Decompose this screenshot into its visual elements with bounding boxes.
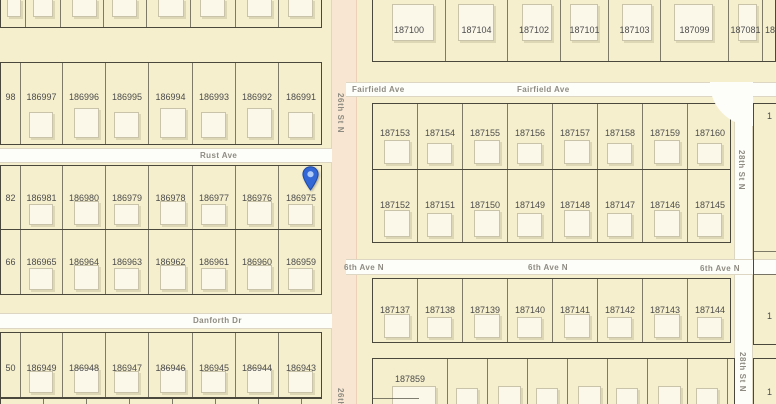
block-left-bottom-strip xyxy=(0,398,322,404)
parcel[interactable]: 186993 xyxy=(193,63,236,144)
parcel-number: 186946 xyxy=(149,363,192,373)
parcel-number: 186962 xyxy=(149,257,192,267)
parcel-number: 187141 xyxy=(553,305,597,315)
parcel-divider xyxy=(754,274,776,275)
parcel[interactable]: 18 xyxy=(763,0,776,61)
parcel-number: 186943 xyxy=(279,363,323,373)
parcel-number: 187099 xyxy=(661,25,728,35)
parcel-number: 187151 xyxy=(418,200,462,210)
parcel[interactable] xyxy=(608,359,648,404)
parcel-number: 18 xyxy=(763,25,776,35)
street-label-28th-st-n-bottom: 28th St N xyxy=(738,352,747,392)
parcel-number: 187154 xyxy=(418,128,462,138)
parcel[interactable] xyxy=(528,359,568,404)
parcel-number: 66 xyxy=(1,257,20,267)
parcel-number: 186995 xyxy=(106,92,148,102)
parcel-number: 186996 xyxy=(63,92,105,102)
parcel[interactable] xyxy=(1,0,26,27)
parcel[interactable]: 186961 xyxy=(193,230,236,294)
parcel[interactable]: 187139 xyxy=(463,279,508,342)
parcel[interactable]: 186992 xyxy=(236,63,279,144)
parcel[interactable]: 186977 xyxy=(193,166,236,229)
block-left-top xyxy=(0,0,322,28)
parcel[interactable]: 186943 xyxy=(279,333,323,397)
parcel-number: 186976 xyxy=(236,193,278,203)
parcel-number: 186977 xyxy=(193,193,235,203)
parcel[interactable]: 82 xyxy=(1,166,21,229)
parcel-number: 187139 xyxy=(463,305,507,315)
map-marker-pin[interactable] xyxy=(302,166,319,191)
street-label-28th-st-n: 28th St N xyxy=(737,150,746,190)
road-danforth-dr xyxy=(0,313,332,329)
parcel[interactable]: 186994 xyxy=(149,63,193,144)
road-26th-st-n xyxy=(331,0,357,404)
parcel-number: 187140 xyxy=(508,305,552,315)
parcel-number: 187148 xyxy=(553,200,597,210)
parcel[interactable] xyxy=(754,359,776,404)
parcel[interactable]: 186980 xyxy=(63,166,106,229)
parcel[interactable]: 186945 xyxy=(193,333,236,397)
parcel-number: 186979 xyxy=(106,193,148,203)
parcel-number: 186949 xyxy=(21,363,62,373)
block-left-row1: 98 186997 186996 186995 186994 186993 18… xyxy=(0,62,322,145)
parcel-number: 187158 xyxy=(598,128,642,138)
parcel[interactable]: 187149 xyxy=(508,170,553,242)
parcel-number: 187142 xyxy=(598,305,642,315)
parcel[interactable] xyxy=(568,359,608,404)
parcel[interactable]: 186996 xyxy=(63,63,106,144)
block-right-bottom: 187859 xyxy=(372,358,735,404)
parcel-number: 186964 xyxy=(63,257,105,267)
parcel[interactable]: 187154 xyxy=(418,104,463,169)
parcel[interactable]: 186964 xyxy=(63,230,106,294)
street-label-26th-st-n: 26th St N xyxy=(336,93,345,133)
parcel-number: 186997 xyxy=(21,92,62,102)
parcel-number: 187859 xyxy=(373,374,447,384)
parcel[interactable] xyxy=(191,0,236,27)
parcel[interactable]: 187153 xyxy=(373,104,418,169)
parcel-number: 186981 xyxy=(21,193,62,203)
parcel[interactable] xyxy=(104,0,147,27)
parcel[interactable]: 187101 xyxy=(561,0,609,61)
parcel-number: 187159 xyxy=(643,128,687,138)
parcel[interactable]: 186963 xyxy=(106,230,149,294)
parcel[interactable]: 187081 xyxy=(729,0,763,61)
parcel[interactable]: 186995 xyxy=(106,63,149,144)
parcel[interactable] xyxy=(488,359,528,404)
block-right-row2: 187152 187151 187150 187149 187148 18714… xyxy=(372,169,731,243)
parcel[interactable]: 187147 xyxy=(598,170,643,242)
street-label-26th-st-n-bottom: 26th St N xyxy=(336,388,345,404)
parcel[interactable]: 186978 xyxy=(149,166,193,229)
street-label-6th-ave-n: 6th Ave N xyxy=(528,263,568,272)
parcel[interactable]: 187103 xyxy=(609,0,661,61)
parcel-number: 187150 xyxy=(463,200,507,210)
parcel-number: 1 xyxy=(767,387,772,397)
parcel[interactable]: 187157 xyxy=(553,104,598,169)
parcel-number: 187103 xyxy=(609,25,660,35)
parcel-number: 186944 xyxy=(236,363,278,373)
parcel[interactable]: 186962 xyxy=(149,230,193,294)
parcel-number: 1 xyxy=(767,311,772,321)
parcel-number: 1 xyxy=(767,111,772,121)
parcel[interactable] xyxy=(61,0,104,27)
parcel[interactable]: 187100 xyxy=(373,0,446,61)
parcel-number: 187081 xyxy=(729,25,762,35)
parcel-number: 187155 xyxy=(463,128,507,138)
street-label-rust-ave: Rust Ave xyxy=(200,151,237,160)
parcel-number: 187102 xyxy=(508,25,560,35)
block-left-row2: 82 186981 186980 186979 186978 186977 18… xyxy=(0,165,322,229)
parcel[interactable]: 186944 xyxy=(236,333,279,397)
parcel[interactable]: 186959 xyxy=(279,230,323,294)
parcel[interactable]: 187155 xyxy=(463,104,508,169)
parcel-number: 186980 xyxy=(63,193,105,203)
parcel-number: 187144 xyxy=(688,305,732,315)
block-right-row3: 187137 187138 187139 187140 187141 18714… xyxy=(372,278,731,343)
parcel[interactable]: 186997 xyxy=(21,63,63,144)
parcel-number: 186965 xyxy=(21,257,62,267)
parcel-number: 187157 xyxy=(553,128,597,138)
parcel-number: 187147 xyxy=(598,200,642,210)
parcel[interactable]: 187138 xyxy=(418,279,463,342)
parcel-number: 186963 xyxy=(106,257,148,267)
parcel[interactable]: 66 xyxy=(1,230,21,294)
parcel[interactable]: 186981 xyxy=(21,166,63,229)
block-left-row3: 66 186965 186964 186963 186962 186961 18… xyxy=(0,229,322,295)
parcel[interactable] xyxy=(147,0,191,27)
parcel[interactable] xyxy=(648,359,688,404)
parcel[interactable]: 98 xyxy=(1,63,21,144)
parcel[interactable] xyxy=(236,0,279,27)
parcel-number: 186960 xyxy=(236,257,278,267)
parcel[interactable]: 187137 xyxy=(373,279,418,342)
parcel[interactable]: 186979 xyxy=(106,166,149,229)
parcel-number: 187101 xyxy=(561,25,608,35)
parcel-number: 187145 xyxy=(688,200,732,210)
parcel[interactable]: 187104 xyxy=(446,0,508,61)
street-label-fairfield-ave-left: Fairfield Ave xyxy=(352,85,405,94)
block-left-row4: 50 186949 186948 186947 186946 186945 18… xyxy=(0,332,322,398)
parcel-number: 186978 xyxy=(149,193,192,203)
parcel[interactable] xyxy=(279,0,323,27)
parcel[interactable]: 187151 xyxy=(418,170,463,242)
parcel[interactable]: 186991 xyxy=(279,63,323,144)
parcel[interactable]: 187144 xyxy=(688,279,732,342)
parcel-number: 187137 xyxy=(373,305,417,315)
parcel[interactable]: 187152 xyxy=(373,170,418,242)
parcel[interactable]: 187143 xyxy=(643,279,688,342)
block-far-right-bottom: 1 xyxy=(753,358,776,404)
parcel-number: 187143 xyxy=(643,305,687,315)
parcel-number: 187156 xyxy=(508,128,552,138)
parcel-number: 187160 xyxy=(688,128,732,138)
parcel-number: 98 xyxy=(1,92,20,102)
street-label-danforth-dr: Danforth Dr xyxy=(193,316,242,325)
parcel[interactable]: 186948 xyxy=(63,333,106,397)
parcel-number: 82 xyxy=(1,193,20,203)
parcel-number: 187153 xyxy=(373,128,417,138)
parcel-number: 186961 xyxy=(193,257,235,267)
parcel-number: 186993 xyxy=(193,92,235,102)
parcel-number: 186959 xyxy=(279,257,323,267)
parcel-number: 186975 xyxy=(279,193,323,203)
block-far-right: 1 1 xyxy=(753,103,776,345)
parcel[interactable] xyxy=(688,359,728,404)
parcel[interactable]: 186949 xyxy=(21,333,63,397)
block-right-row1: 187153 187154 187155 187156 187157 18715… xyxy=(372,103,731,169)
parcel-number: 187100 xyxy=(373,25,445,35)
parcel[interactable]: 187145 xyxy=(688,170,732,242)
block-right-top: 187100 187104 187102 187101 187103 18709… xyxy=(372,0,776,62)
parcel[interactable]: 186960 xyxy=(236,230,279,294)
parcel[interactable]: 50 xyxy=(1,333,21,397)
parcel[interactable]: 186947 xyxy=(106,333,149,397)
parcel-number: 187104 xyxy=(446,25,507,35)
parcel-divider xyxy=(754,251,776,252)
parcel-number: 187152 xyxy=(373,200,417,210)
map-canvas[interactable]: 98 186997 186996 186995 186994 186993 18… xyxy=(0,0,776,404)
parcel[interactable] xyxy=(26,0,61,27)
street-label-6th-ave-n-left: 6th Ave N xyxy=(344,263,384,272)
parcel-number: 187149 xyxy=(508,200,552,210)
parcel-number: 186945 xyxy=(193,363,235,373)
parcel-number: 186994 xyxy=(149,92,192,102)
parcel-number: 186991 xyxy=(279,92,323,102)
parcel[interactable]: 187142 xyxy=(598,279,643,342)
parcel-number: 186947 xyxy=(106,363,148,373)
parcel-number: 186948 xyxy=(63,363,105,373)
street-label-6th-ave-n-right: 6th Ave N xyxy=(700,264,740,273)
parcel[interactable]: 187150 xyxy=(463,170,508,242)
parcel[interactable] xyxy=(754,104,776,344)
parcel[interactable]: 187859 xyxy=(373,359,448,404)
parcel-number: 187146 xyxy=(643,200,687,210)
parcel[interactable]: 187156 xyxy=(508,104,553,169)
parcel[interactable]: 187158 xyxy=(598,104,643,169)
parcel[interactable]: 187159 xyxy=(643,104,688,169)
parcel[interactable]: 186946 xyxy=(149,333,193,397)
parcel[interactable]: 187140 xyxy=(508,279,553,342)
road-rust-ave xyxy=(0,148,332,163)
parcel[interactable]: 187141 xyxy=(553,279,598,342)
parcel-number: 50 xyxy=(1,363,20,373)
parcel[interactable]: 187146 xyxy=(643,170,688,242)
parcel[interactable]: 186965 xyxy=(21,230,63,294)
parcel[interactable] xyxy=(728,359,736,404)
street-label-fairfield-ave: Fairfield Ave xyxy=(517,85,570,94)
parcel[interactable]: 187102 xyxy=(508,0,561,61)
parcel[interactable]: 187099 xyxy=(661,0,729,61)
parcel-number: 186992 xyxy=(236,92,278,102)
parcel[interactable] xyxy=(448,359,488,404)
parcel-number: 187138 xyxy=(418,305,462,315)
parcel[interactable]: 186976 xyxy=(236,166,279,229)
parcel[interactable]: 187148 xyxy=(553,170,598,242)
